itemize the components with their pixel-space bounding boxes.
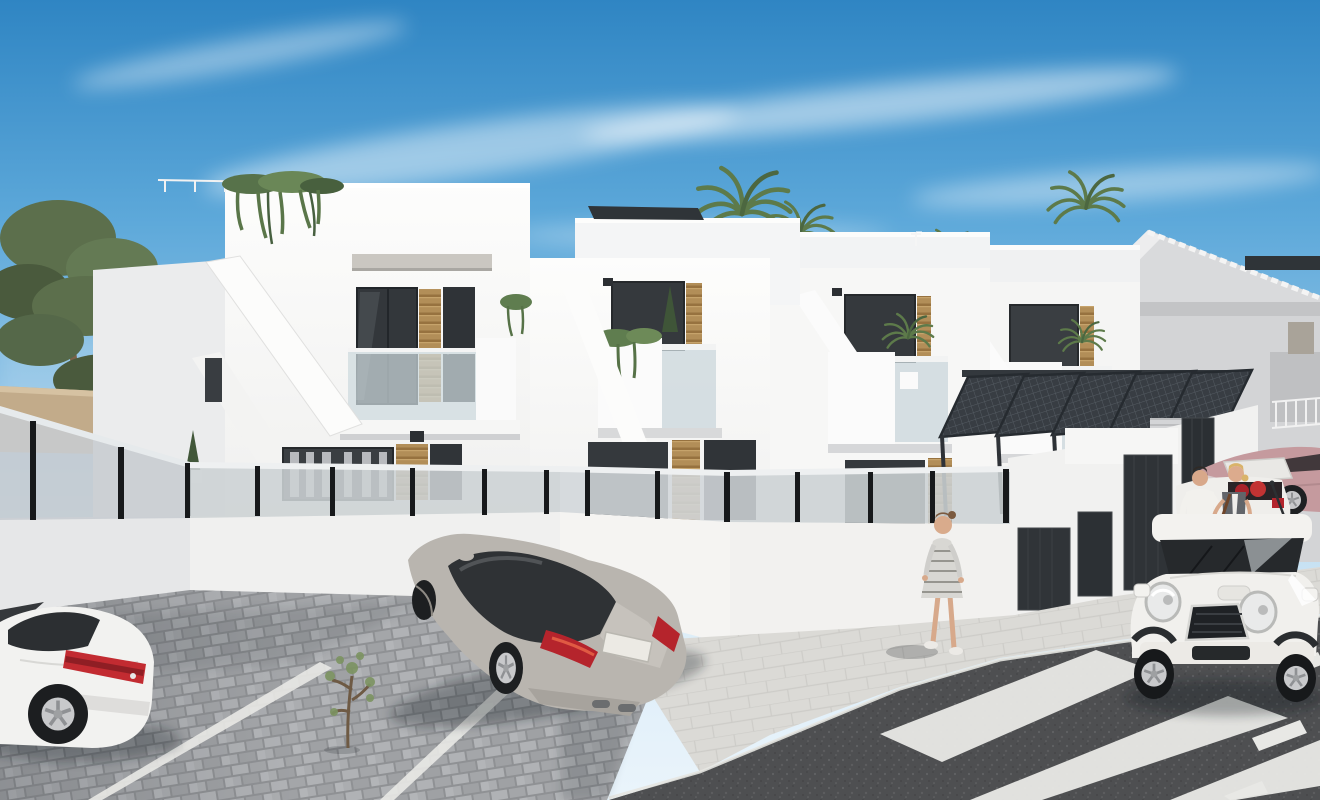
shutter-window bbox=[1288, 322, 1314, 354]
roof bbox=[1152, 514, 1312, 542]
headlight bbox=[1146, 583, 1180, 621]
wall-lamp bbox=[832, 288, 842, 296]
stone-lintel bbox=[352, 254, 492, 270]
grille bbox=[1186, 604, 1248, 640]
solar-panel bbox=[588, 206, 704, 220]
lower-intake bbox=[1192, 646, 1250, 660]
solar-panel bbox=[1245, 256, 1320, 270]
small-window bbox=[205, 358, 222, 402]
wall-lamp bbox=[410, 431, 424, 442]
timber-slats bbox=[686, 283, 702, 348]
architectural-render bbox=[0, 0, 1320, 800]
frosted-glass bbox=[190, 466, 560, 518]
balcony-glass bbox=[662, 348, 716, 428]
wall-lamp bbox=[603, 278, 613, 286]
glass-balustrade bbox=[348, 352, 478, 424]
side-mirror bbox=[1134, 584, 1150, 597]
